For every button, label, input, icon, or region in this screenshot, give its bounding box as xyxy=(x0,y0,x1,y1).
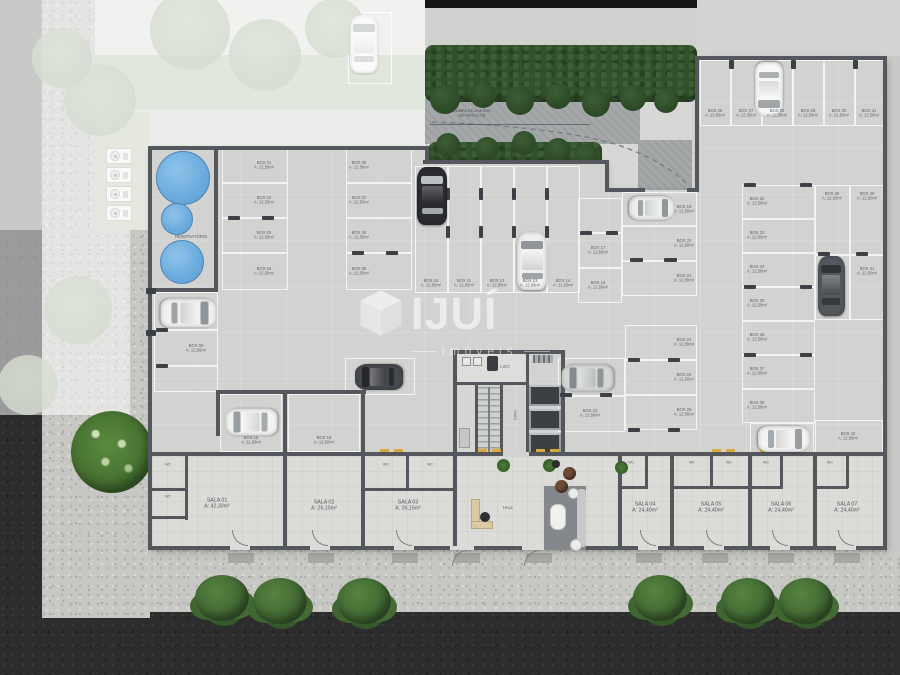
parking-spot-label: BOX 25 A: 12,50m² xyxy=(661,407,708,417)
wall xyxy=(456,382,528,385)
wall-opening xyxy=(310,546,330,550)
reception-desk-return xyxy=(471,521,493,529)
car-roof xyxy=(645,200,660,217)
entry-pad xyxy=(392,553,418,563)
wheel-stop xyxy=(800,183,812,187)
wheel-stop xyxy=(744,183,756,187)
wc-label: WC xyxy=(672,461,712,465)
car-rear-window xyxy=(822,298,841,305)
car-roof xyxy=(759,81,779,99)
parking-spot xyxy=(850,255,885,320)
wheel-stop xyxy=(545,188,549,200)
car xyxy=(355,364,403,390)
wc-label: WC xyxy=(611,461,651,465)
site-boundary-strip xyxy=(425,0,700,8)
car-rear-window xyxy=(389,368,394,386)
room-label: SALA 06 A: 24,40m² xyxy=(751,501,810,513)
parking-spot-label: BOX 23 A: 12,50m² xyxy=(661,337,708,347)
parking-spot-label: BOX 15 A: 12,50m² xyxy=(228,435,275,445)
street-bottom xyxy=(0,612,900,675)
wall xyxy=(645,452,648,488)
trash-bin xyxy=(462,357,471,366)
car-windshield xyxy=(569,368,576,389)
bush xyxy=(195,575,249,621)
coffee-table xyxy=(550,504,566,530)
elevator-vent xyxy=(533,355,553,363)
parking-spot-label: BOX 32 A: 12,50m² xyxy=(734,196,781,206)
wheel-stop xyxy=(729,60,734,69)
lounge-chair xyxy=(563,467,576,480)
wall xyxy=(423,160,609,164)
storage-cabinet xyxy=(459,428,470,448)
entry-pad xyxy=(308,553,334,563)
car-roof xyxy=(422,186,443,205)
wc-label: WC xyxy=(410,463,450,467)
wheel-stop xyxy=(606,231,618,235)
parking-spot-label: BOX 09 A: 12,50m² xyxy=(336,266,383,276)
entry-pad xyxy=(768,553,794,563)
wheel-stop xyxy=(628,358,640,362)
threshold-marker xyxy=(394,449,403,452)
floor-plan-image: CIRC. LIXO RESERVATÓRIO HALL RAMPA DE AC… xyxy=(0,0,900,675)
threshold-marker xyxy=(726,449,735,452)
water-reservoir xyxy=(156,151,210,205)
wheel-stop xyxy=(668,428,680,432)
wall-opening xyxy=(522,546,546,550)
desk-chair xyxy=(480,512,490,522)
car-rear-window xyxy=(759,72,779,78)
wall xyxy=(846,452,849,488)
car-rear-window xyxy=(261,413,267,432)
car-windshield xyxy=(200,302,208,324)
elevator-2 xyxy=(529,409,561,430)
parking-spot-label: BOX 34 A: 12,50m² xyxy=(734,264,781,274)
parking-spot-label: BOX 33 A: 12,50m² xyxy=(734,230,781,240)
staircase-rail xyxy=(488,387,490,453)
parking-spot-label: BOX 42 A: 12,50m² xyxy=(825,431,872,441)
wc-label: WC xyxy=(746,461,786,465)
threshold-marker xyxy=(478,449,487,452)
wall-opening xyxy=(450,546,474,550)
wheel-stop xyxy=(630,258,643,262)
wheel-stop xyxy=(800,353,812,357)
outside-top-right xyxy=(697,0,900,56)
wheel-stop xyxy=(228,216,240,220)
bush xyxy=(337,578,391,624)
parking-spot-label: BOX 38 A: 12,50m² xyxy=(734,400,781,410)
wheel-stop xyxy=(668,358,680,362)
wall xyxy=(813,486,848,489)
wall-opening xyxy=(836,546,856,550)
pouf xyxy=(570,539,582,551)
threshold-marker xyxy=(712,449,721,452)
car-roof xyxy=(180,303,198,323)
entry-pad xyxy=(702,553,728,563)
wall xyxy=(216,390,366,394)
parking-spot xyxy=(547,166,580,293)
car xyxy=(417,167,447,225)
car xyxy=(225,409,277,436)
wheel-stop xyxy=(446,226,450,238)
wc-label: WC xyxy=(366,463,406,467)
wheel-stop xyxy=(800,285,812,289)
wall xyxy=(148,146,429,150)
parking-spot-label: BOX 02 A: 12,50m² xyxy=(241,195,288,205)
parking-spot-label: BOX 17 A: 12,50m² xyxy=(575,245,622,255)
wheel-stop xyxy=(560,393,572,397)
parking-spot xyxy=(448,166,481,293)
wheel-stop xyxy=(479,188,483,200)
wall xyxy=(453,350,457,456)
outside-right-strip xyxy=(887,56,900,556)
wheel-stop xyxy=(744,285,756,289)
parking-spot-label: BOX 37 A: 12,50m² xyxy=(734,366,781,376)
wall xyxy=(283,392,287,550)
wall xyxy=(618,486,648,489)
entry-pad xyxy=(834,553,860,563)
room-label: SALA 01 A: 42,30m² xyxy=(187,497,246,509)
corridor-label: CIRC. xyxy=(513,400,518,430)
outside-above-ramp xyxy=(425,8,697,46)
car-windshield xyxy=(521,241,544,249)
car-roof xyxy=(522,251,543,270)
wall-opening xyxy=(503,452,529,456)
water-reservoir xyxy=(161,203,193,235)
plant xyxy=(497,459,510,472)
car-rear-window xyxy=(638,200,643,217)
parking-spot-label: BOX 41 A: 12,50m² xyxy=(844,266,891,276)
wall xyxy=(150,516,188,519)
parking-spot-label: BOX 22 A: 12,50m² xyxy=(567,408,614,418)
wc-label: WC xyxy=(148,463,188,467)
fade-overlay-left xyxy=(0,230,130,415)
bush xyxy=(779,578,833,624)
wheel-stop xyxy=(262,216,274,220)
parking-spot-label: BOX 31 A: 12,50m² xyxy=(846,108,893,118)
threshold-marker xyxy=(536,449,545,452)
wall xyxy=(750,486,783,489)
wall-opening xyxy=(770,546,790,550)
wheel-stop xyxy=(744,353,756,357)
bush xyxy=(633,575,687,621)
car-roof xyxy=(242,413,259,432)
wall xyxy=(475,384,478,454)
parking-spot-label: BOX 21 A: 12,50m² xyxy=(661,273,708,283)
wall xyxy=(152,288,216,292)
parking-spot-label: BOX 08 A: 12,50m² xyxy=(336,230,383,240)
room-label: SALA 03 A: 26,15m² xyxy=(378,499,437,511)
lounge-chair xyxy=(555,480,568,493)
wheel-stop xyxy=(156,328,168,332)
wall xyxy=(363,488,455,491)
wall xyxy=(605,188,645,192)
wall xyxy=(500,384,503,454)
wheel-stop xyxy=(580,231,592,235)
wall xyxy=(780,452,783,488)
wall xyxy=(695,58,699,191)
sofa xyxy=(577,489,586,547)
car xyxy=(818,256,845,316)
parking-spot-label: BOX 06 A: 12,50m² xyxy=(336,160,383,170)
car-windshield xyxy=(795,429,802,449)
parking-spot-label: BOX 03 A: 12,50m² xyxy=(241,230,288,240)
wall xyxy=(710,452,713,488)
tree xyxy=(71,411,153,493)
car-roof xyxy=(370,368,386,386)
wheel-stop xyxy=(512,188,516,200)
car-windshield xyxy=(758,100,779,108)
wheel-stop xyxy=(512,226,516,238)
wall xyxy=(453,350,565,354)
car-rear-window xyxy=(768,430,774,448)
room-label: SALA 07 A: 24,40m² xyxy=(817,501,876,513)
wall xyxy=(453,452,457,550)
pouf xyxy=(568,488,579,499)
room-label: SALA 04 A: 24,40m² xyxy=(615,501,674,513)
wall xyxy=(214,146,218,292)
trash-room-label: LIXO xyxy=(482,364,529,369)
car-rear-window xyxy=(597,369,603,388)
wheel-stop xyxy=(156,364,168,368)
parking-spot xyxy=(481,166,514,293)
car-roof xyxy=(578,369,595,388)
wheel-stop xyxy=(479,226,483,238)
parking-spot-label: BOX 20 A: 12,50m² xyxy=(661,238,708,248)
parking-spot-label: BOX 04 A: 12,50m² xyxy=(241,266,288,276)
wall-opening xyxy=(230,546,250,550)
wall-opening xyxy=(394,546,414,550)
water-reservoir xyxy=(160,240,204,284)
wall-opening xyxy=(704,546,724,550)
car xyxy=(758,426,810,452)
wheel-stop xyxy=(853,60,858,69)
wheel-stop xyxy=(146,330,156,336)
car-roof xyxy=(822,275,841,295)
wheel-stop xyxy=(600,393,612,397)
threshold-marker xyxy=(550,449,559,452)
wheel-stop xyxy=(856,252,868,256)
wheel-stop xyxy=(352,251,364,255)
entry-pad xyxy=(228,553,254,563)
wall xyxy=(150,488,188,491)
wheel-stop xyxy=(628,428,640,432)
side-table xyxy=(552,460,560,468)
room-label: SALA 05 A: 24,40m² xyxy=(681,501,740,513)
car-rear-window xyxy=(422,208,443,214)
parking-spot-label: BOX 07 A: 12,50m² xyxy=(336,195,383,205)
parking-spot-label: BOX 35 A: 12,50m² xyxy=(734,298,781,308)
wc-label: WC xyxy=(709,461,749,465)
wc-label: WC xyxy=(148,495,188,499)
wall xyxy=(361,392,365,550)
threshold-marker xyxy=(380,449,389,452)
car-windshield xyxy=(821,265,842,273)
room-label: SALA 02 A: 26,15m² xyxy=(294,499,353,511)
parking-spot-label: BOX 24 A: 12,50m² xyxy=(661,372,708,382)
car-windshield xyxy=(233,412,240,433)
wall xyxy=(406,452,409,490)
wall-opening xyxy=(638,546,658,550)
elevator-1 xyxy=(529,385,561,406)
parking-spot-label: BOX 16 A: 12,50m² xyxy=(301,435,348,445)
car xyxy=(561,365,613,392)
wall xyxy=(883,56,887,550)
car-windshield xyxy=(362,367,369,387)
wheel-stop xyxy=(146,288,156,294)
car-rear-window xyxy=(171,303,177,323)
wall xyxy=(605,160,609,191)
entry-pad xyxy=(636,553,662,563)
bush xyxy=(253,578,307,624)
bush xyxy=(721,578,775,624)
wheel-stop xyxy=(791,60,796,69)
parking-spot-label: BOX 36 A: 12,50m² xyxy=(734,332,781,342)
car-roof xyxy=(776,430,793,448)
parking-spot xyxy=(154,366,218,392)
parking-spot-label: BOX 18 A: 12,50m² xyxy=(575,280,622,290)
parking-spot-label: BOX 01 A: 12,50m² xyxy=(241,160,288,170)
wc-label: WC xyxy=(810,461,850,465)
parking-spot-label: BOX 05 A: 12,50m² xyxy=(173,343,220,353)
parking-spot xyxy=(578,198,622,233)
car-windshield xyxy=(421,176,444,184)
car xyxy=(160,299,216,328)
hall-label: HALL xyxy=(485,505,532,510)
parking-spot-label: BOX 40 A: 12,50m² xyxy=(844,191,891,201)
wheel-stop xyxy=(386,251,398,255)
wheel-stop xyxy=(664,258,677,262)
reservoir-label: RESERVATÓRIO xyxy=(168,234,215,239)
wall xyxy=(216,390,220,436)
parking-spot-label: BOX 19 A: 12,50m² xyxy=(661,204,708,214)
threshold-marker xyxy=(492,449,501,452)
